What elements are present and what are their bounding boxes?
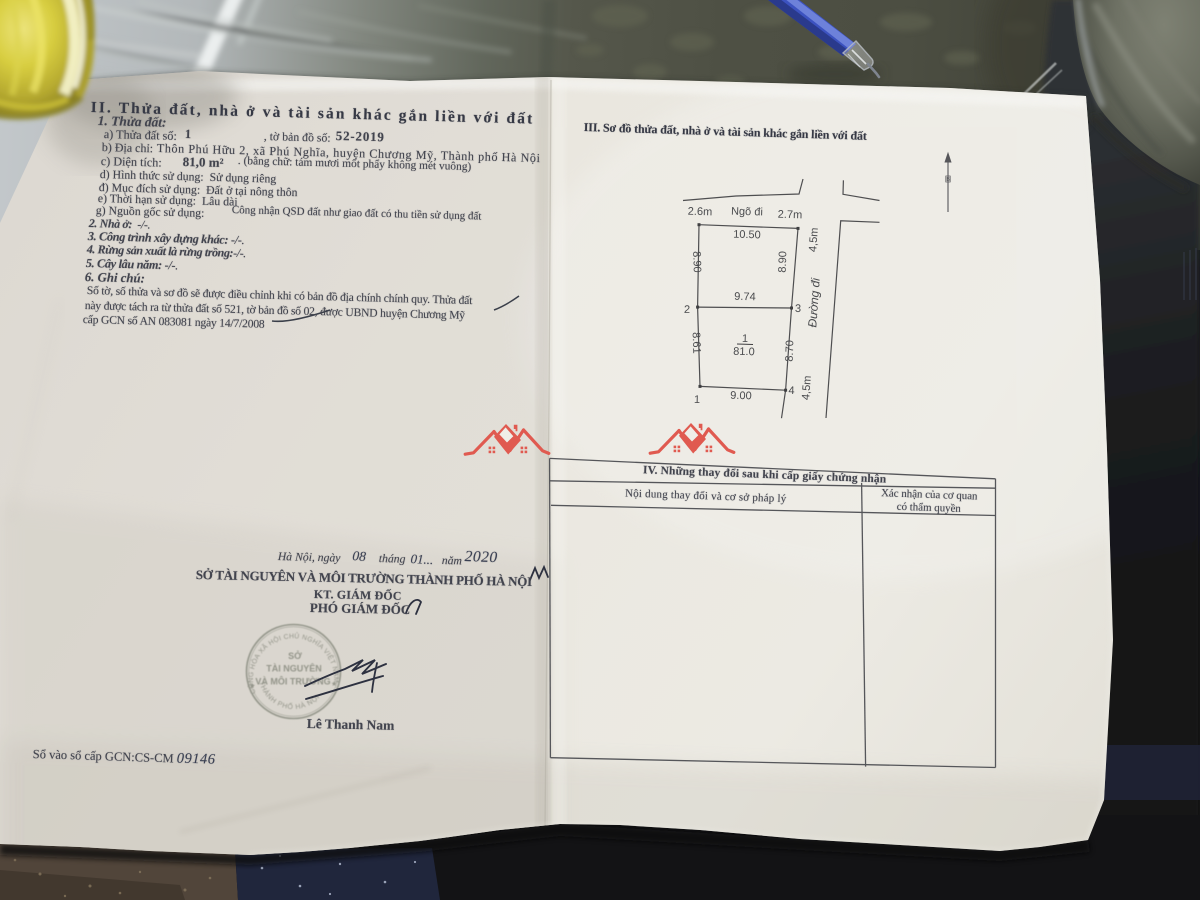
svg-text:2.6m: 2.6m — [688, 206, 713, 219]
svg-text:9.00: 9.00 — [730, 390, 752, 403]
svg-text:★: ★ — [249, 682, 255, 690]
svg-text:9.74: 9.74 — [734, 291, 756, 304]
svg-text:8.70: 8.70 — [784, 340, 797, 362]
svg-text:1: 1 — [742, 333, 748, 345]
svg-text:3: 3 — [795, 303, 801, 315]
svg-text:8.61: 8.61 — [690, 332, 703, 354]
svg-text:10.50: 10.50 — [733, 229, 761, 242]
svg-text:4,5m: 4,5m — [807, 227, 821, 252]
svg-text:2.7m: 2.7m — [778, 209, 803, 222]
svg-text:1: 1 — [694, 394, 700, 406]
svg-text:81.0: 81.0 — [733, 346, 755, 359]
svg-text:B: B — [946, 177, 950, 183]
svg-text:Ngõ đi: Ngõ đi — [731, 206, 763, 219]
svg-text:4,5m: 4,5m — [800, 375, 814, 400]
svg-text:SỞ: SỞ — [288, 650, 302, 661]
svg-text:VÀ MÔI TRƯỜNG: VÀ MÔI TRƯỜNG — [255, 676, 330, 687]
svg-text:4: 4 — [788, 385, 794, 397]
svg-text:★: ★ — [331, 680, 337, 688]
svg-text:2: 2 — [684, 304, 690, 316]
svg-text:8.90: 8.90 — [777, 251, 790, 273]
svg-text:TÀI NGUYÊN: TÀI NGUYÊN — [266, 663, 322, 674]
svg-text:8.90: 8.90 — [690, 251, 703, 273]
